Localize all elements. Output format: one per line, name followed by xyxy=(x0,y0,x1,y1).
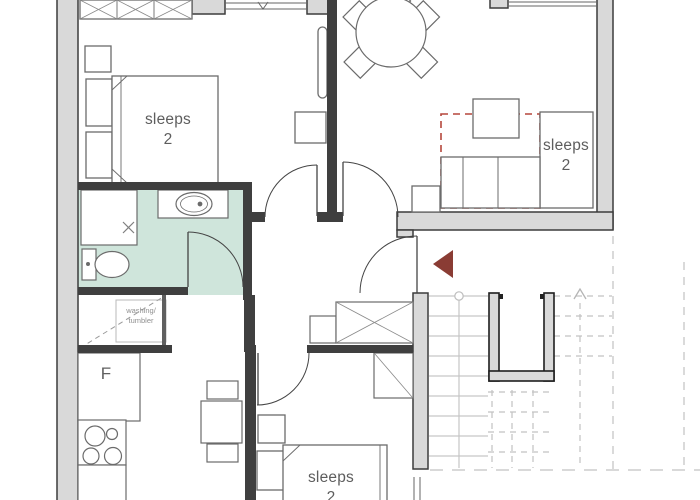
room-capacity-number: 2 xyxy=(118,130,218,150)
wall-pier-top xyxy=(490,0,508,8)
room-label-bedroom-top-left: sleeps 2 xyxy=(118,110,218,150)
room-capacity-number: 2 xyxy=(516,156,616,176)
door-swing-icon xyxy=(257,353,309,405)
burner-icon xyxy=(83,448,99,464)
stair-post-marker xyxy=(455,292,463,300)
side-table-icon xyxy=(295,112,326,143)
stair-direction-arrow-icon xyxy=(574,289,586,299)
wall xyxy=(243,182,252,300)
kitchen-counter xyxy=(78,465,126,500)
kitchen-table-icon xyxy=(201,401,242,443)
wardrobe-icon xyxy=(80,0,192,19)
floor-plan-drawing xyxy=(0,0,700,500)
entrance-arrow-icon xyxy=(433,250,453,278)
burner-icon xyxy=(107,429,118,440)
window-top-bedroom xyxy=(225,3,307,9)
burner-icon xyxy=(105,448,122,465)
door-swing-icon xyxy=(265,165,317,217)
room-capacity-number: 2 xyxy=(281,488,381,500)
wall-pier-top xyxy=(192,0,225,14)
stair-core-walls xyxy=(489,293,554,381)
room-label-bedroom-bottom: sleeps 2 xyxy=(281,468,381,500)
door-swing-icon xyxy=(343,162,398,217)
pillow xyxy=(86,79,112,126)
wall xyxy=(244,295,255,352)
radiator-icon xyxy=(318,27,327,98)
utility-closet-label: washing/ tumbler xyxy=(117,306,165,325)
room-capacity-text: sleeps xyxy=(118,110,218,130)
utility-label-line1: washing/ xyxy=(117,306,165,316)
exterior-wall-lounge-bottom xyxy=(397,212,613,230)
dining-set xyxy=(343,0,440,78)
kitchen-chair-icon xyxy=(207,381,238,399)
wall xyxy=(248,212,265,222)
wall-pier-top xyxy=(307,0,330,14)
side-table-icon xyxy=(412,186,440,212)
window-top-lounge xyxy=(508,2,597,6)
coffee-table-icon xyxy=(473,99,519,138)
wall xyxy=(78,182,250,190)
window-bottom-bedroom xyxy=(414,477,420,500)
room-label-lounge-sofa-bed: sleeps 2 xyxy=(516,136,616,176)
wall xyxy=(78,287,188,295)
burner-icon xyxy=(85,426,105,446)
shower-icon xyxy=(81,190,137,245)
wall xyxy=(327,0,337,214)
stair-treads-above-dashed xyxy=(430,236,700,470)
hall-cabinet-icon xyxy=(310,316,336,343)
tap-icon xyxy=(198,202,202,206)
wall xyxy=(245,345,256,500)
kitchen-chair-icon xyxy=(207,444,238,462)
pillow xyxy=(86,132,112,178)
stair-wall-notch xyxy=(499,294,503,299)
dining-table-icon xyxy=(356,0,426,67)
exterior-wall-hall-right xyxy=(413,293,428,469)
stair-wall-notch xyxy=(540,294,544,299)
utility-label-line2: tumbler xyxy=(117,316,165,326)
floor-plan: sleeps 2 sleeps 2 sleeps 2 washing/ tumb… xyxy=(0,0,700,500)
staircase-icon xyxy=(429,236,700,470)
wall xyxy=(307,345,413,353)
stair-treads xyxy=(429,293,488,468)
toilet-icon xyxy=(82,249,129,280)
fridge-label: F xyxy=(88,364,124,384)
exterior-wall-right xyxy=(597,0,613,229)
washbasin-bowl xyxy=(181,196,208,212)
bedside-table-icon xyxy=(258,415,285,443)
room-capacity-text: sleeps xyxy=(281,468,381,488)
exterior-wall-left xyxy=(57,0,78,500)
bedroom-top-left-furniture xyxy=(80,0,327,183)
entrance-door-swing-icon xyxy=(360,236,417,293)
room-capacity-text: sleeps xyxy=(516,136,616,156)
wall xyxy=(78,345,172,353)
bedside-table-icon xyxy=(85,46,111,72)
